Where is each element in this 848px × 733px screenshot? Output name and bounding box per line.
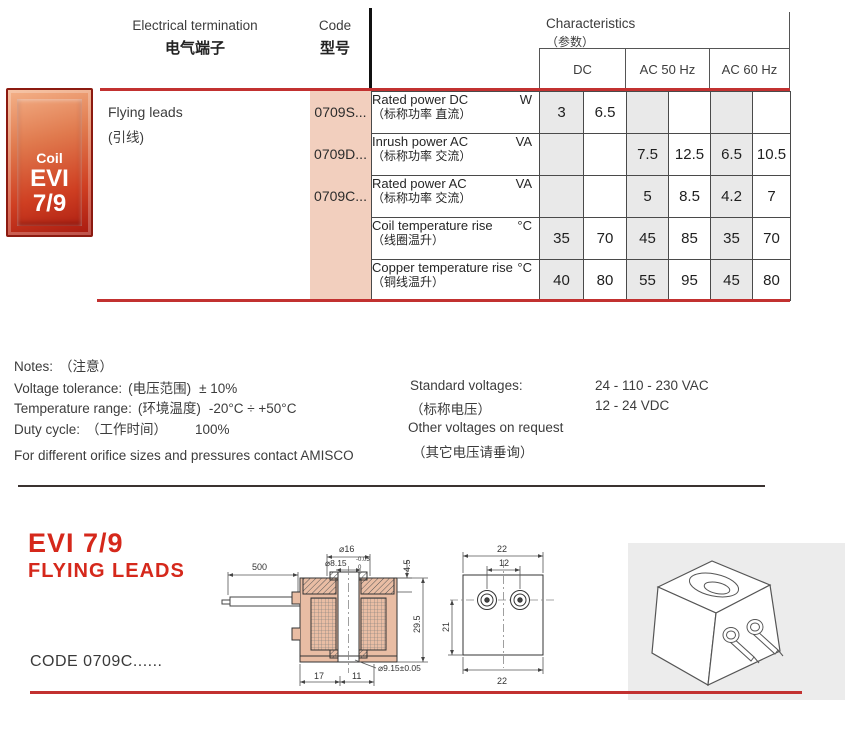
section-title-evi79: EVI 7/9 [28, 528, 124, 559]
header-right-line [789, 12, 790, 48]
value-cell: 8.5 [669, 176, 711, 218]
value-cell: 80 [753, 260, 791, 301]
value-cell: 4.2 [711, 176, 753, 218]
value-cell [627, 92, 669, 134]
svg-text:17: 17 [314, 671, 324, 681]
notes-title: Notes: （注意） [14, 355, 113, 375]
code-0709d: 0709D... [310, 133, 371, 175]
value-cell: 95 [669, 260, 711, 301]
value-cell: 85 [669, 218, 711, 260]
value-cell: 70 [584, 218, 627, 260]
standard-voltages-label: Standard voltages: [410, 378, 523, 393]
note-duty-cycle: Duty cycle: （工作时间） 100% [14, 418, 230, 438]
row-label: Coil temperature rise°C （线圈温升） [372, 218, 540, 260]
note-label: Temperature range: [14, 401, 132, 416]
value-cell: 6.5 [584, 92, 627, 134]
standard-voltages-vdc: 12 - 24 VDC [595, 398, 669, 413]
svg-text:29.5: 29.5 [412, 615, 422, 633]
note-contact-amisco: For different orifice sizes and pressure… [14, 448, 354, 463]
svg-text:500: 500 [252, 562, 267, 572]
svg-text:⌀8.15: ⌀8.15 [325, 558, 347, 568]
note-temperature-range: Temperature range: (环境温度) -20°C ÷ +50°C [14, 397, 296, 417]
row-label-en: Copper temperature rise [372, 260, 513, 275]
row-unit: VA [516, 176, 532, 191]
notes-title-zh: （注意） [59, 355, 113, 375]
table-top-rule [100, 88, 790, 91]
value-cell: 7.5 [627, 134, 669, 176]
section-divider [18, 485, 765, 487]
row-label: Rated power ACVA （标称功率 交流） [372, 176, 540, 218]
characteristics-table: Rated power DCW （标称功率 直流） 3 6.5 Inrush p… [371, 91, 791, 301]
front-view-drawing: 22 12 21 22 [438, 535, 568, 700]
value-cell: 12.5 [669, 134, 711, 176]
dim-front-bottom-22: 22 [463, 657, 543, 686]
row-unit: °C [517, 218, 532, 233]
row-label-en: Rated power AC [372, 176, 467, 191]
value-cell: 55 [627, 260, 669, 301]
svg-text:22: 22 [497, 676, 507, 686]
note-label-zh: (环境温度) [138, 397, 201, 417]
front-body [463, 575, 543, 655]
row-coil-temperature-rise: Coil temperature rise°C （线圈温升） 35 70 45 … [372, 218, 791, 260]
badge-line-79: 7/9 [33, 191, 66, 217]
dim-295: 29.5 [397, 578, 428, 662]
datasheet-page: Electrical termination 电气端子 Code 型号 Char… [0, 0, 848, 733]
row-label: Copper temperature rise°C （铜线温升） [372, 260, 540, 301]
section-title-flying-leads: FLYING LEADS [28, 560, 185, 583]
row-label-en: Inrush power AC [372, 134, 468, 149]
coil-badge-face: Coil EVI 7/9 [17, 99, 82, 226]
badge-line-evi: EVI [30, 166, 69, 191]
note-label: Voltage tolerance: [14, 381, 122, 396]
value-cell: 35 [711, 218, 753, 260]
row-inrush-power-ac: Inrush power ACVA （标称功率 交流） 7.5 12.5 6.5… [372, 134, 791, 176]
dim-45: 4.5 [397, 559, 412, 592]
header-electrical-termination-zh: 电气端子 [110, 37, 280, 58]
dim-500: 500 [228, 562, 298, 595]
row-label-zh: （线圈温升） [372, 233, 539, 247]
value-cell [711, 92, 753, 134]
row-label-zh: （铜线温升） [372, 275, 539, 289]
value-cell: 35 [540, 218, 584, 260]
note-value: 100% [195, 422, 230, 437]
value-cell: 10.5 [753, 134, 791, 176]
header-subcolumns: DC AC 50 Hz AC 60 Hz [539, 48, 790, 89]
standard-voltages-vac: 24 - 110 - 230 VAC [595, 378, 709, 393]
note-value: -20°C ÷ +50°C [209, 401, 297, 416]
subcol-ac60: AC 60 Hz [710, 49, 790, 89]
coil-3d-drawing [628, 543, 845, 700]
header-electrical-termination-en: Electrical termination [110, 18, 280, 33]
row-rated-power-ac: Rated power ACVA （标称功率 交流） 5 8.5 4.2 7 [372, 176, 791, 218]
value-cell: 45 [711, 260, 753, 301]
code-0709c: 0709C... [310, 175, 371, 217]
value-cell: 70 [753, 218, 791, 260]
svg-text:⌀16: ⌀16 [339, 544, 354, 554]
value-cell: 6.5 [711, 134, 753, 176]
value-cell: 5 [627, 176, 669, 218]
svg-text:22: 22 [497, 544, 507, 554]
note-label-zh: (电压范围) [128, 377, 191, 397]
dim-front-21: 21 [441, 600, 463, 655]
row-copper-temperature-rise: Copper temperature rise°C （铜线温升） 40 80 5… [372, 260, 791, 301]
row-label: Inrush power ACVA （标称功率 交流） [372, 134, 540, 176]
svg-text:12: 12 [499, 558, 509, 568]
svg-text:⌀9.15±0.05: ⌀9.15±0.05 [378, 663, 421, 673]
subcol-dc: DC [539, 49, 626, 89]
code-caption: CODE 0709C...... [30, 653, 163, 671]
lead-wire [222, 597, 300, 606]
cross-section-drawing: 500 ⌀16 ⌀8.15 -0.05 [212, 537, 452, 695]
value-cell [540, 176, 584, 218]
value-cell [584, 134, 627, 176]
value-cell: 45 [627, 218, 669, 260]
svg-text:-0.05: -0.05 [356, 557, 370, 563]
header-code-en: Code [300, 18, 370, 33]
row-label: Rated power DCW （标称功率 直流） [372, 92, 540, 134]
subcol-ac50: AC 50 Hz [626, 49, 710, 89]
note-value: ± 10% [199, 381, 237, 396]
coil-badge: Coil EVI 7/9 [6, 88, 93, 237]
coil-body [292, 566, 397, 673]
value-cell: 7 [753, 176, 791, 218]
svg-text:0: 0 [358, 565, 362, 571]
other-voltages-label: Other voltages on request [408, 420, 563, 435]
badge-line-coil: Coil [36, 151, 62, 166]
row-unit: VA [516, 134, 532, 149]
row-label-zh: （标称功率 交流） [372, 149, 539, 163]
svg-text:11: 11 [352, 671, 361, 681]
value-cell: 3 [540, 92, 584, 134]
row-rated-power-dc: Rated power DCW （标称功率 直流） 3 6.5 [372, 92, 791, 134]
row-unit: °C [517, 260, 532, 275]
value-cell [753, 92, 791, 134]
row-unit: W [520, 92, 532, 107]
bottom-rule [30, 691, 802, 694]
header-divider [369, 8, 372, 88]
notes-title-en: Notes: [14, 359, 53, 374]
value-cell [584, 176, 627, 218]
standard-voltages-label-zh: （标称电压） [410, 398, 491, 418]
note-label-zh: （工作时间） [86, 418, 167, 438]
header-characteristics-en: Characteristics [546, 16, 635, 31]
value-cell [669, 92, 711, 134]
note-label: Duty cycle: [14, 422, 80, 437]
render-panel [628, 543, 845, 700]
note-voltage-tolerance: Voltage tolerance: (电压范围) ± 10% [14, 377, 237, 397]
row-label-zh: （标称功率 直流） [372, 107, 539, 121]
value-cell: 40 [540, 260, 584, 301]
other-voltages-label-zh: （其它电压请垂询） [412, 441, 534, 461]
row-label-en: Rated power DC [372, 92, 468, 107]
row-label-zh: （标称功率 交流） [372, 191, 539, 205]
value-cell [540, 134, 584, 176]
code-0709s: 0709S... [310, 91, 371, 133]
row-label-en: Coil temperature rise [372, 218, 493, 233]
value-cell: 80 [584, 260, 627, 301]
dim-diameter-815: ⌀8.15 -0.05 0 [325, 557, 370, 571]
termination-flying-leads: Flying leads [108, 104, 183, 120]
svg-text:21: 21 [441, 622, 451, 632]
dim-17-11: 17 11 [300, 664, 374, 686]
svg-text:4.5: 4.5 [402, 559, 412, 572]
header-code-zh: 型号 [300, 37, 370, 58]
table-bottom-rule [97, 299, 790, 302]
termination-flying-leads-zh: (引线) [108, 126, 144, 146]
